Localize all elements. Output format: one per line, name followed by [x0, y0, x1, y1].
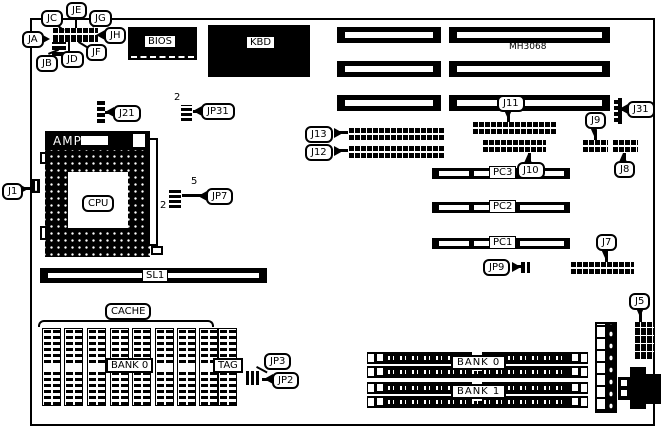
- cache-chip-1: [42, 328, 61, 406]
- pci-slot-pc2: PC2: [432, 202, 570, 213]
- cache-chip-6: [155, 328, 174, 406]
- cache-brace: [38, 320, 214, 327]
- socket-tab-bottom: [40, 226, 47, 240]
- j10-header: [482, 140, 546, 152]
- pci-slot-label-pc1: PC1: [489, 236, 516, 249]
- callout-j10: J10: [517, 162, 545, 179]
- pci-slot-label-pc3: PC3: [489, 166, 516, 179]
- callout-j31: J31: [627, 101, 655, 118]
- amp-component: [81, 136, 108, 145]
- motherboard-diagram: JE JC JG JA JH JF JD JB BIOS KBD MH3068 …: [0, 0, 662, 433]
- zif-lever: [148, 138, 158, 246]
- simm-bank0-label: BANK 0: [451, 355, 506, 370]
- j12-header: [348, 146, 445, 158]
- keyboard-din-connector-mid: [630, 367, 646, 409]
- socket-tab-top: [40, 152, 47, 164]
- cache-bank0-label: BANK 0: [106, 358, 153, 373]
- zif-lever-foot: [151, 246, 163, 255]
- callout-j7: J7: [596, 234, 617, 251]
- callout-j13: J13: [305, 126, 333, 143]
- j7-header: [570, 262, 634, 274]
- callout-jp7: JP7: [206, 188, 233, 205]
- leader-jp9-tail: [512, 262, 521, 272]
- callout-j12: J12: [305, 144, 333, 161]
- callout-jp3: JP3: [264, 353, 291, 370]
- isa-slot-2-left: [337, 61, 441, 77]
- callout-jp31: JP31: [201, 103, 235, 120]
- callout-jf: JF: [86, 44, 107, 61]
- jp3-jp2-jumper: [246, 371, 261, 385]
- leader-j12-tail: [334, 146, 343, 156]
- jp7-pin5-number: 5: [191, 177, 197, 187]
- j9-header: [582, 140, 608, 152]
- keyboard-din-pin-1: [621, 380, 627, 386]
- amp-end-cap: [132, 133, 146, 148]
- jp31-jumper: [181, 105, 192, 121]
- isa-slot-2-right: [449, 61, 610, 77]
- front-panel-header: [52, 28, 98, 42]
- chipset-label: MH3068: [509, 42, 546, 52]
- callout-ja: JA: [22, 31, 44, 48]
- keyboard-din-pin-2: [621, 390, 627, 396]
- kbd-controller-chip: KBD: [208, 25, 310, 77]
- callout-jb: JB: [36, 55, 58, 72]
- amp-voltage-regulator: AMP: [45, 131, 150, 150]
- callout-jd: JD: [61, 51, 84, 68]
- power-connector-pins-left: [597, 324, 607, 411]
- jp31-pin2-number: 2: [174, 93, 180, 103]
- j13-header: [348, 128, 445, 140]
- cache-chip-3: [87, 328, 106, 406]
- jp7-pin2-number: 2: [160, 201, 166, 211]
- callout-j11: J11: [497, 95, 525, 112]
- isa-slot-3-left: [337, 95, 441, 111]
- bios-chip-label: BIOS: [144, 35, 176, 48]
- isa-slot-3-right: [449, 95, 610, 111]
- leader-j13-tail: [334, 128, 343, 138]
- simm-bank1-label: BANK 1: [451, 384, 506, 399]
- j8-header: [612, 140, 638, 152]
- callout-j21: J21: [113, 105, 141, 122]
- pci-slot-pc1: PC1: [432, 238, 570, 249]
- tag-label: TAG: [213, 358, 243, 373]
- callout-je: JE: [66, 2, 87, 19]
- callout-j9: J9: [585, 112, 606, 129]
- cpu-label: CPU: [82, 195, 114, 212]
- jp7-jumper: [169, 188, 181, 208]
- j5-connector: [635, 322, 654, 359]
- callout-j1: J1: [2, 183, 23, 200]
- power-connector-pins-right: [607, 324, 615, 411]
- kbd-chip-label: KBD: [246, 36, 275, 49]
- callout-jp9: JP9: [483, 259, 510, 276]
- callout-cache: CACHE: [105, 303, 151, 320]
- cache-chip-7: [177, 328, 196, 406]
- bios-socket-pins: [131, 56, 194, 58]
- amp-label: AMP: [53, 134, 82, 148]
- bios-chip: BIOS: [128, 27, 197, 60]
- callout-jh: JH: [104, 27, 126, 44]
- pci-slot-label-pc2: PC2: [489, 200, 516, 213]
- j1-connector: [31, 179, 40, 193]
- pci-slot-pc3: PC3: [432, 168, 570, 179]
- isa-slot-1-left: [337, 27, 441, 43]
- power-connector: [595, 322, 617, 413]
- callout-jg: JG: [89, 10, 112, 27]
- callout-jp2: JP2: [272, 372, 299, 389]
- isa-slot-1-right: [449, 27, 610, 43]
- jp9-connector: [521, 262, 530, 273]
- cache-chip-2: [64, 328, 83, 406]
- callout-j5: J5: [629, 293, 650, 310]
- callout-j8: J8: [614, 161, 635, 178]
- j21-header: [97, 100, 105, 125]
- j11-header: [472, 122, 556, 134]
- keyboard-din-connector-right: [645, 374, 661, 404]
- sl1-label: SL1: [142, 269, 168, 282]
- callout-jc: JC: [41, 10, 63, 27]
